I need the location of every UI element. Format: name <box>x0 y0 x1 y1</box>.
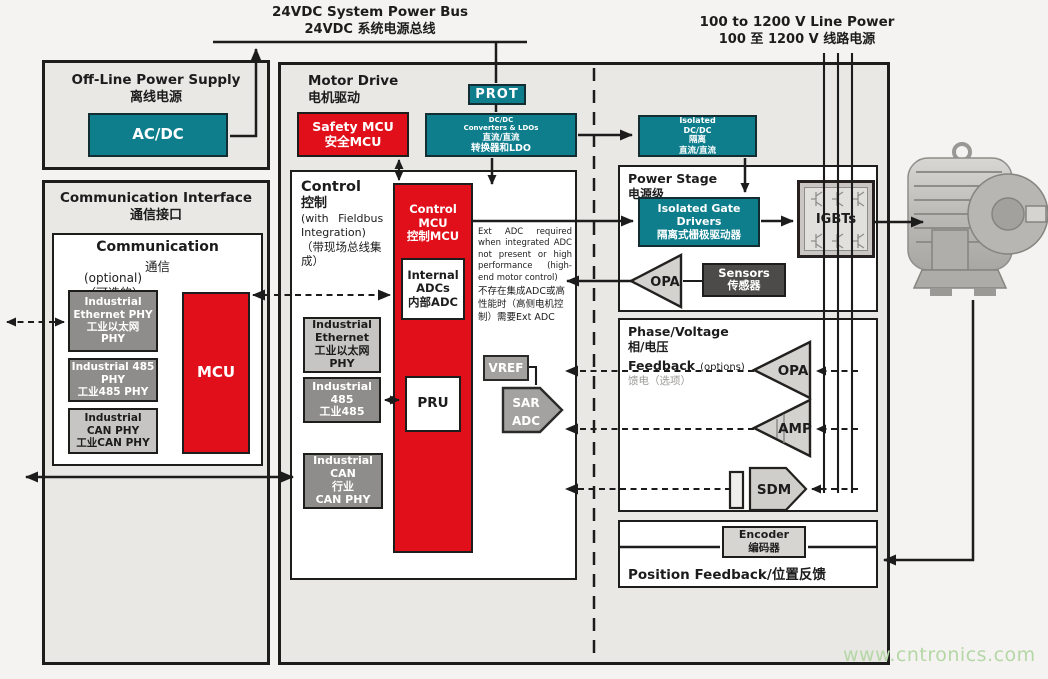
sar-adc-block: SAR ADC <box>501 386 567 434</box>
line-power-label-zh: 100 至 1200 V 线路电源 <box>688 32 906 49</box>
offline-title: Off-Line Power Supply 离线电源 <box>45 72 267 106</box>
prot-block: PROT <box>468 84 526 105</box>
sdm-feedback-block: SDM <box>726 464 814 514</box>
industrial-485-phy-block: Industrial 485 PHY 工业485 PHY <box>68 358 158 402</box>
sensors-block: Sensors 传感器 <box>702 263 786 297</box>
offline-title-en: Off-Line Power Supply <box>45 72 267 90</box>
position-feedback-label: Position Feedback/位置反馈 <box>628 563 826 583</box>
isolated-dcdc-block: Isolated DC/DC 隔离 直流/直流 <box>638 115 757 157</box>
acdc-label: AC/DC <box>132 126 184 144</box>
watermark: www.cntronics.com <box>843 644 1036 666</box>
industrial-ethernet-phy-block: Industrial Ethernet PHY 工业以太网 PHY <box>68 290 158 352</box>
acdc-block: AC/DC <box>88 113 228 157</box>
svg-text:OPA: OPA <box>778 363 809 379</box>
industrial-can-phy-block: Industrial CAN PHY 工业CAN PHY <box>68 408 158 454</box>
line-power-label-en: 100 to 1200 V Line Power <box>688 14 906 32</box>
motor-drive-title: Motor Drive 电机驱动 <box>308 73 398 107</box>
ext-adc-note-zh: 不存在集成ADC或高性能时（高侧电机控制）需要Ext ADC <box>478 286 572 324</box>
control-mcu-block: Control MCU 控制MCU <box>393 183 473 553</box>
amp-feedback-block: AMP <box>751 397 815 461</box>
options-label-zh: 馈电（选项） <box>628 375 745 388</box>
svg-text:OPA: OPA <box>650 275 679 290</box>
control-title: Control 控制 (with Fieldbus Integration) （… <box>301 178 397 269</box>
comm-interface-title-en: Communication Interface <box>45 190 267 208</box>
encoder-block: Encoder 编码器 <box>722 526 806 558</box>
comm-interface-title: Communication Interface 通信接口 <box>45 190 267 224</box>
opa-power-stage-block: OPA <box>628 252 686 312</box>
opa-feedback-block: OPA <box>751 339 815 403</box>
motor-to-position-feedback-arrow <box>884 300 973 560</box>
comm-interface-title-zh: 通信接口 <box>45 208 267 225</box>
dcdc-converters-block: DC/DC Converters & LDOs 直流/直流 转换器和LDO <box>425 113 577 157</box>
options-label: (options) <box>700 362 745 373</box>
control-485-block: Industrial 485 工业485 <box>303 377 381 423</box>
power-bus-label: 24VDC System Power Bus 24VDC 系统电源总线 <box>215 4 525 38</box>
comm-mcu-block: MCU <box>182 292 250 454</box>
svg-text:SAR: SAR <box>512 396 539 410</box>
line-power-label: 100 to 1200 V Line Power 100 至 1200 V 线路… <box>688 14 906 48</box>
ext-adc-note-en: Ext ADC required when integrated ADC not… <box>478 227 572 283</box>
power-bus-label-zh: 24VDC 系统电源总线 <box>215 22 525 39</box>
system-block-diagram: 24VDC System Power Bus 24VDC 系统电源总线 100 … <box>0 0 1048 679</box>
control-ethernet-phy-block: Industrial Ethernet 工业以太网 PHY <box>303 317 381 373</box>
comm-mcu-label: MCU <box>197 364 235 382</box>
igbts-label: IGBTs <box>805 212 867 227</box>
safety-mcu-block: Safety MCU 安全MCU <box>297 112 409 157</box>
optional-en: (optional) <box>84 271 144 286</box>
feedback-label: Feedback <box>628 358 695 373</box>
motor-photo <box>902 138 1048 306</box>
svg-text:AMP: AMP <box>778 421 812 437</box>
vref-block: VREF <box>483 355 529 381</box>
ext-adc-note: Ext ADC required when integrated ADC not… <box>478 227 572 325</box>
igbts-block: IGBTs <box>797 180 875 258</box>
offline-title-zh: 离线电源 <box>45 90 267 107</box>
internal-adcs-block: Internal ADCs 内部ADC <box>401 258 465 320</box>
svg-text:ADC: ADC <box>512 414 540 428</box>
power-bus-label-en: 24VDC System Power Bus <box>215 4 525 22</box>
pru-block: PRU <box>405 376 461 432</box>
phase-feedback-title: Phase/Voltage 相/电压 Feedback (options) 馈电… <box>628 324 745 388</box>
isolated-gate-drivers-block: Isolated Gate Drivers 隔离式栅极驱动器 <box>638 197 760 247</box>
communication-title: Communication <box>54 238 261 256</box>
control-can-phy-block: Industrial CAN 行业 CAN PHY <box>303 453 383 509</box>
svg-text:SDM: SDM <box>757 482 791 498</box>
